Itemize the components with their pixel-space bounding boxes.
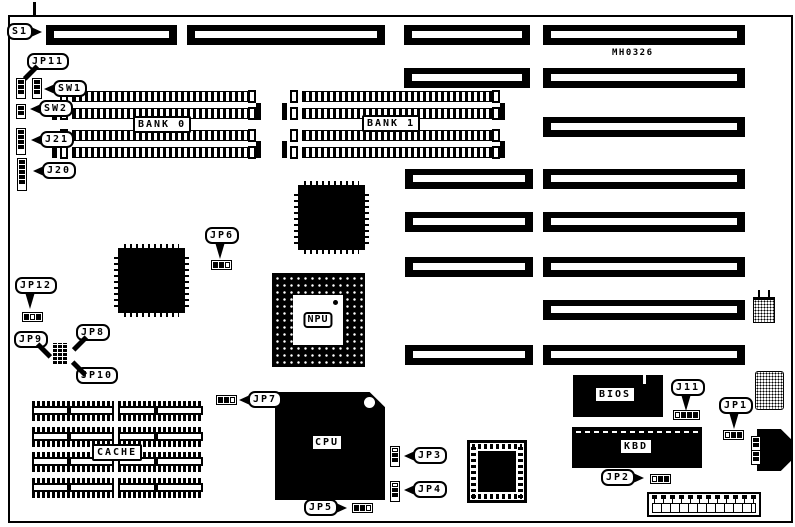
plcc-contacts-top xyxy=(472,444,522,449)
callout-label: JP3 xyxy=(418,450,442,461)
npu-socket: NPU xyxy=(272,273,365,367)
slot-contact-stripe xyxy=(413,175,525,182)
callout-tail-down xyxy=(215,242,225,259)
jumper-pin xyxy=(392,458,398,462)
jumper-pin xyxy=(392,488,398,492)
jumper-jp12-header xyxy=(22,312,43,322)
jumper-pin xyxy=(354,505,359,511)
plcc-contacts-right xyxy=(518,445,523,498)
simm-clip xyxy=(290,107,298,120)
qfp-pins-left xyxy=(114,254,118,307)
callout-tail-down xyxy=(681,394,691,411)
cache-chip-body xyxy=(71,434,112,439)
jumper-pin xyxy=(18,90,24,94)
power-connector xyxy=(647,492,761,517)
jumper-jp4-header xyxy=(390,481,400,502)
expansion-slot xyxy=(187,25,385,45)
cache-chip-bodies xyxy=(118,483,203,492)
jumper-pin xyxy=(693,412,698,418)
jumper-pin-open xyxy=(675,412,680,418)
plcc-contacts-bottom xyxy=(472,494,522,499)
slot-contact-stripe xyxy=(551,351,737,358)
slot-contact-stripe xyxy=(551,123,737,130)
kbd-notch-dashes xyxy=(576,431,698,433)
callout-jp11: JP11 xyxy=(27,53,69,70)
simm-socket xyxy=(302,91,492,102)
slot-contact-stripe xyxy=(413,263,525,270)
callout-j21: J21 xyxy=(40,131,74,148)
cache-label: CACHE xyxy=(92,444,142,461)
callout-tail-left xyxy=(404,485,415,495)
callout-label: SW1 xyxy=(58,83,82,94)
callout-jp12: JP12 xyxy=(15,277,57,294)
expansion-slot xyxy=(405,169,533,189)
jumper-block-jp9-jp8-jp10 xyxy=(53,343,68,364)
expansion-slot xyxy=(543,68,745,88)
callout-label: JP4 xyxy=(418,484,442,495)
slot-contact-stripe xyxy=(551,175,737,182)
callout-label: JP5 xyxy=(309,502,333,513)
expansion-slot xyxy=(405,345,533,365)
jumper-pin xyxy=(24,314,29,320)
jumper-pin xyxy=(19,175,25,179)
expansion-slot xyxy=(404,68,530,88)
cache-chip-bodies xyxy=(118,406,203,415)
callout-tail-left xyxy=(31,135,42,145)
callout-label: J11 xyxy=(676,382,700,393)
callout-sw2: SW2 xyxy=(39,100,73,117)
expansion-slot xyxy=(404,25,530,45)
callout-jp1: JP1 xyxy=(719,397,753,414)
jumper-pin xyxy=(664,476,669,482)
cache-chip-body xyxy=(120,485,154,490)
simm-clip xyxy=(492,146,500,159)
callout-tail-left xyxy=(239,395,250,405)
jumper-sw1-header xyxy=(32,78,42,99)
cache-chip-body xyxy=(34,434,67,439)
cache-chip-body xyxy=(158,408,201,413)
callout-tail-right xyxy=(336,503,347,513)
simm-frame-bar xyxy=(282,103,287,120)
expansion-slot xyxy=(543,169,745,189)
cache-chip-body xyxy=(120,434,154,439)
callout-label: J21 xyxy=(45,134,69,145)
slot-contact-stripe xyxy=(551,74,737,81)
simm-frame-bar xyxy=(282,141,287,158)
jumper-pin xyxy=(18,80,24,84)
qfp-pins-bottom xyxy=(124,313,179,317)
cache-chip-body xyxy=(120,408,154,413)
crystal-oscillator xyxy=(753,297,775,323)
simm-frame-bar xyxy=(500,141,505,158)
callout-tail-left xyxy=(404,451,415,461)
keyboard-din-connector xyxy=(757,429,791,471)
cache-chip-body xyxy=(71,408,112,413)
cache-chip-body xyxy=(158,485,201,490)
jumper-pin-open xyxy=(392,448,398,452)
callout-tail-down xyxy=(729,412,739,429)
callout-label: JP7 xyxy=(253,394,277,405)
jumper-pin xyxy=(18,140,24,144)
jumper-pin xyxy=(19,160,25,164)
slot-contact-stripe xyxy=(551,306,737,313)
slot-contact-stripe xyxy=(551,31,737,38)
slot-contact-stripe xyxy=(54,31,169,38)
jumper-pin xyxy=(753,443,759,447)
jumper-pin xyxy=(687,412,692,418)
bios-notch xyxy=(643,375,646,384)
jumper-pin xyxy=(18,85,24,89)
cpu-pin1-circle xyxy=(364,397,375,408)
simm-clip xyxy=(290,90,298,103)
callout-jp10: JP10 xyxy=(76,367,118,384)
aux-connector xyxy=(755,371,784,410)
jumper-din-nub-1 xyxy=(751,436,761,451)
jumper-pin xyxy=(218,397,223,403)
jumper-jp2-header xyxy=(650,474,671,484)
jumper-pin-open xyxy=(366,505,371,511)
jumper-pin-open xyxy=(725,432,730,438)
callout-jp2: JP2 xyxy=(601,469,635,486)
slot-contact-stripe xyxy=(195,31,377,38)
bios-chip: BIOS xyxy=(573,375,663,417)
jumper-pin xyxy=(19,165,25,169)
jumper-pin xyxy=(224,397,229,403)
jumper-pin xyxy=(360,505,365,511)
qfp-pins-left xyxy=(294,191,298,244)
jumper-pin xyxy=(753,438,759,442)
jumper-jp3-header xyxy=(390,446,400,467)
jumper-pin xyxy=(34,90,40,94)
jumper-pin xyxy=(19,180,25,184)
part-number-text: MH0326 xyxy=(612,48,654,58)
bios-label: BIOS xyxy=(596,388,634,401)
callout-label: JP6 xyxy=(210,230,234,241)
callout-jp5: JP5 xyxy=(304,499,338,516)
callout-label: JP12 xyxy=(20,280,52,291)
expansion-slot xyxy=(543,212,745,232)
callout-tail-right xyxy=(633,473,644,483)
slot-contact-stripe xyxy=(413,218,525,225)
cache-chip-pair xyxy=(118,478,203,498)
callout-tail-left xyxy=(33,166,44,176)
jumper-j20-header xyxy=(17,158,27,191)
simm-socket xyxy=(302,147,492,158)
simm-clip xyxy=(290,129,298,142)
expansion-slot xyxy=(543,300,745,320)
callout-tail-right xyxy=(31,27,42,37)
expansion-slot xyxy=(405,212,533,232)
motherboard-diagram: MH0326 BANK 0BANK 1S1JP11SW1SW2J21J20JP6… xyxy=(0,0,795,527)
cache-chip-bodies xyxy=(32,406,114,415)
jumper-pin-open xyxy=(225,262,230,268)
simm-frame-bar xyxy=(256,141,261,158)
plcc-chip-body xyxy=(478,451,516,492)
jumper-pin-open xyxy=(30,314,35,320)
expansion-slot xyxy=(543,257,745,277)
jumper-j11-header xyxy=(673,410,700,420)
jumper-pin-open xyxy=(230,397,235,403)
cache-chip-bodies xyxy=(32,483,114,492)
simm-clip xyxy=(492,90,500,103)
simm-frame-bar xyxy=(256,103,261,120)
simm-clip xyxy=(492,129,500,142)
jumper-sw2-header xyxy=(16,104,26,119)
jumper-pin xyxy=(392,453,398,457)
callout-jp9: JP9 xyxy=(14,331,48,348)
crystal-pin xyxy=(758,290,760,300)
expansion-slot xyxy=(543,25,745,45)
jumper-jp11-header xyxy=(16,78,26,99)
slot-contact-stripe xyxy=(413,351,525,358)
crystal-pin xyxy=(768,290,770,300)
simm-socket xyxy=(72,147,248,158)
jumper-pin xyxy=(18,130,24,134)
simm-socket xyxy=(72,91,248,102)
simm-clip xyxy=(248,107,256,120)
callout-s1: S1 xyxy=(7,23,33,40)
slot-contact-stripe xyxy=(412,74,522,81)
jumper-jp1-header xyxy=(723,430,744,440)
qfp-pins-bottom xyxy=(304,250,359,254)
jumper-pin xyxy=(18,145,24,149)
jumper-pin-open xyxy=(652,476,657,482)
callout-label: JP2 xyxy=(606,472,630,483)
bank-label: BANK 1 xyxy=(362,115,420,132)
simm-clip xyxy=(492,107,500,120)
jumper-pin xyxy=(36,314,41,320)
jumper-pin xyxy=(18,111,24,115)
callout-tail-left xyxy=(44,84,55,94)
cache-chip-body xyxy=(158,434,201,439)
callout-jp3: JP3 xyxy=(413,447,447,464)
jumper-pin xyxy=(34,85,40,89)
cache-chip-body xyxy=(34,408,67,413)
jumper-pin xyxy=(18,135,24,139)
jumper-din-nub-2 xyxy=(751,450,761,465)
jumper-pin-open xyxy=(392,483,398,487)
slot-contact-stripe xyxy=(551,218,737,225)
jumper-pin xyxy=(681,412,686,418)
cache-chip-pair xyxy=(118,401,203,421)
callout-label: J20 xyxy=(47,165,71,176)
expansion-slot xyxy=(46,25,177,45)
jumper-pin xyxy=(219,262,224,268)
cache-chip-pair xyxy=(32,478,114,498)
power-pin-cells xyxy=(652,503,756,513)
simm-clip xyxy=(290,146,298,159)
jumper-pin xyxy=(731,432,736,438)
cache-chip-body xyxy=(34,485,67,490)
pin1-dot xyxy=(333,300,338,305)
jumper-pin xyxy=(392,493,398,497)
board-edge-notch xyxy=(33,2,36,17)
simm-clip xyxy=(248,90,256,103)
jumper-pin xyxy=(658,476,663,482)
jumper-pin xyxy=(34,80,40,84)
callout-jp4: JP4 xyxy=(413,481,447,498)
cache-chip-bodies xyxy=(118,432,203,441)
callout-label: JP1 xyxy=(724,400,748,411)
jumper-pin xyxy=(18,106,24,110)
jumper-j21-header xyxy=(16,128,26,155)
cache-chip-pair xyxy=(32,401,114,421)
callout-j11: J11 xyxy=(671,379,705,396)
callout-j20: J20 xyxy=(42,162,76,179)
qfp-pins-right xyxy=(185,254,189,307)
expansion-slot xyxy=(543,117,745,137)
bank-label: BANK 0 xyxy=(133,116,191,133)
simm-clip xyxy=(248,129,256,142)
jumper-pin xyxy=(753,457,759,461)
qfp-pins-top xyxy=(124,244,179,248)
callout-jp6: JP6 xyxy=(205,227,239,244)
slot-contact-stripe xyxy=(551,263,737,270)
jumper-pin xyxy=(753,452,759,456)
slot-contact-stripe xyxy=(412,31,522,38)
callout-tail-down xyxy=(25,292,35,309)
npu-socket-center: NPU xyxy=(293,295,343,345)
callout-tail-left xyxy=(30,104,41,114)
callout-jp7: JP7 xyxy=(248,391,282,408)
expansion-slot xyxy=(543,345,745,365)
callout-jp8: JP8 xyxy=(76,324,110,341)
jumper-jp6-header xyxy=(211,260,232,270)
simm-clip xyxy=(248,146,256,159)
npu-label: NPU xyxy=(303,312,332,328)
jumper-jp5-header xyxy=(352,503,373,513)
callout-sw1: SW1 xyxy=(53,80,87,97)
callout-label: S1 xyxy=(12,26,28,37)
cache-chip-body xyxy=(34,459,67,464)
kbd-controller-chip: KBD xyxy=(572,427,702,468)
qfp-pins-right xyxy=(365,191,369,244)
kbd-label: KBD xyxy=(621,440,651,453)
expansion-slot xyxy=(405,257,533,277)
jumper-pin xyxy=(19,170,25,174)
cache-chip-body xyxy=(158,459,201,464)
cache-chip-body xyxy=(71,485,112,490)
jumper-pin xyxy=(737,432,742,438)
plcc-contacts-left xyxy=(471,445,476,498)
jumper-pin xyxy=(213,262,218,268)
simm-frame-bar xyxy=(500,103,505,120)
jumper-jp7-header xyxy=(216,395,237,405)
cpu-label: CPU xyxy=(313,436,341,449)
callout-label: SW2 xyxy=(44,103,68,114)
plcc-socket-chip xyxy=(467,440,527,503)
qfp-chip xyxy=(118,248,185,313)
cache-chip-bodies xyxy=(32,432,114,441)
qfp-chip xyxy=(298,185,365,250)
qfp-pins-top xyxy=(304,181,359,185)
